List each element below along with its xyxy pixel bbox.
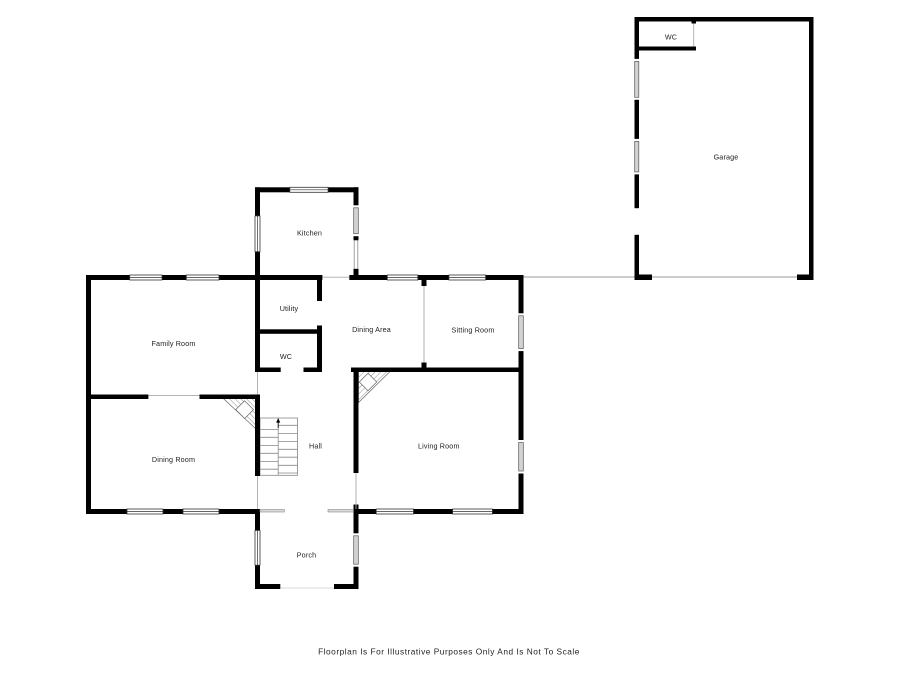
- svg-text:WC: WC: [280, 352, 292, 361]
- svg-text:Kitchen: Kitchen: [297, 228, 322, 237]
- svg-text:WC: WC: [665, 33, 677, 42]
- svg-text:Garage: Garage: [714, 153, 739, 162]
- svg-text:Floorplan Is For Illustrative: Floorplan Is For Illustrative Purposes O…: [318, 646, 580, 656]
- svg-text:Living Room: Living Room: [418, 442, 460, 451]
- svg-text:Utility: Utility: [280, 304, 299, 313]
- svg-text:Sitting Room: Sitting Room: [452, 325, 495, 334]
- svg-text:Dining Area: Dining Area: [352, 325, 391, 334]
- svg-text:Dining Room: Dining Room: [152, 455, 195, 464]
- svg-text:Porch: Porch: [297, 551, 317, 560]
- svg-text:Hall: Hall: [309, 442, 322, 451]
- svg-text:Family Room: Family Room: [152, 339, 196, 348]
